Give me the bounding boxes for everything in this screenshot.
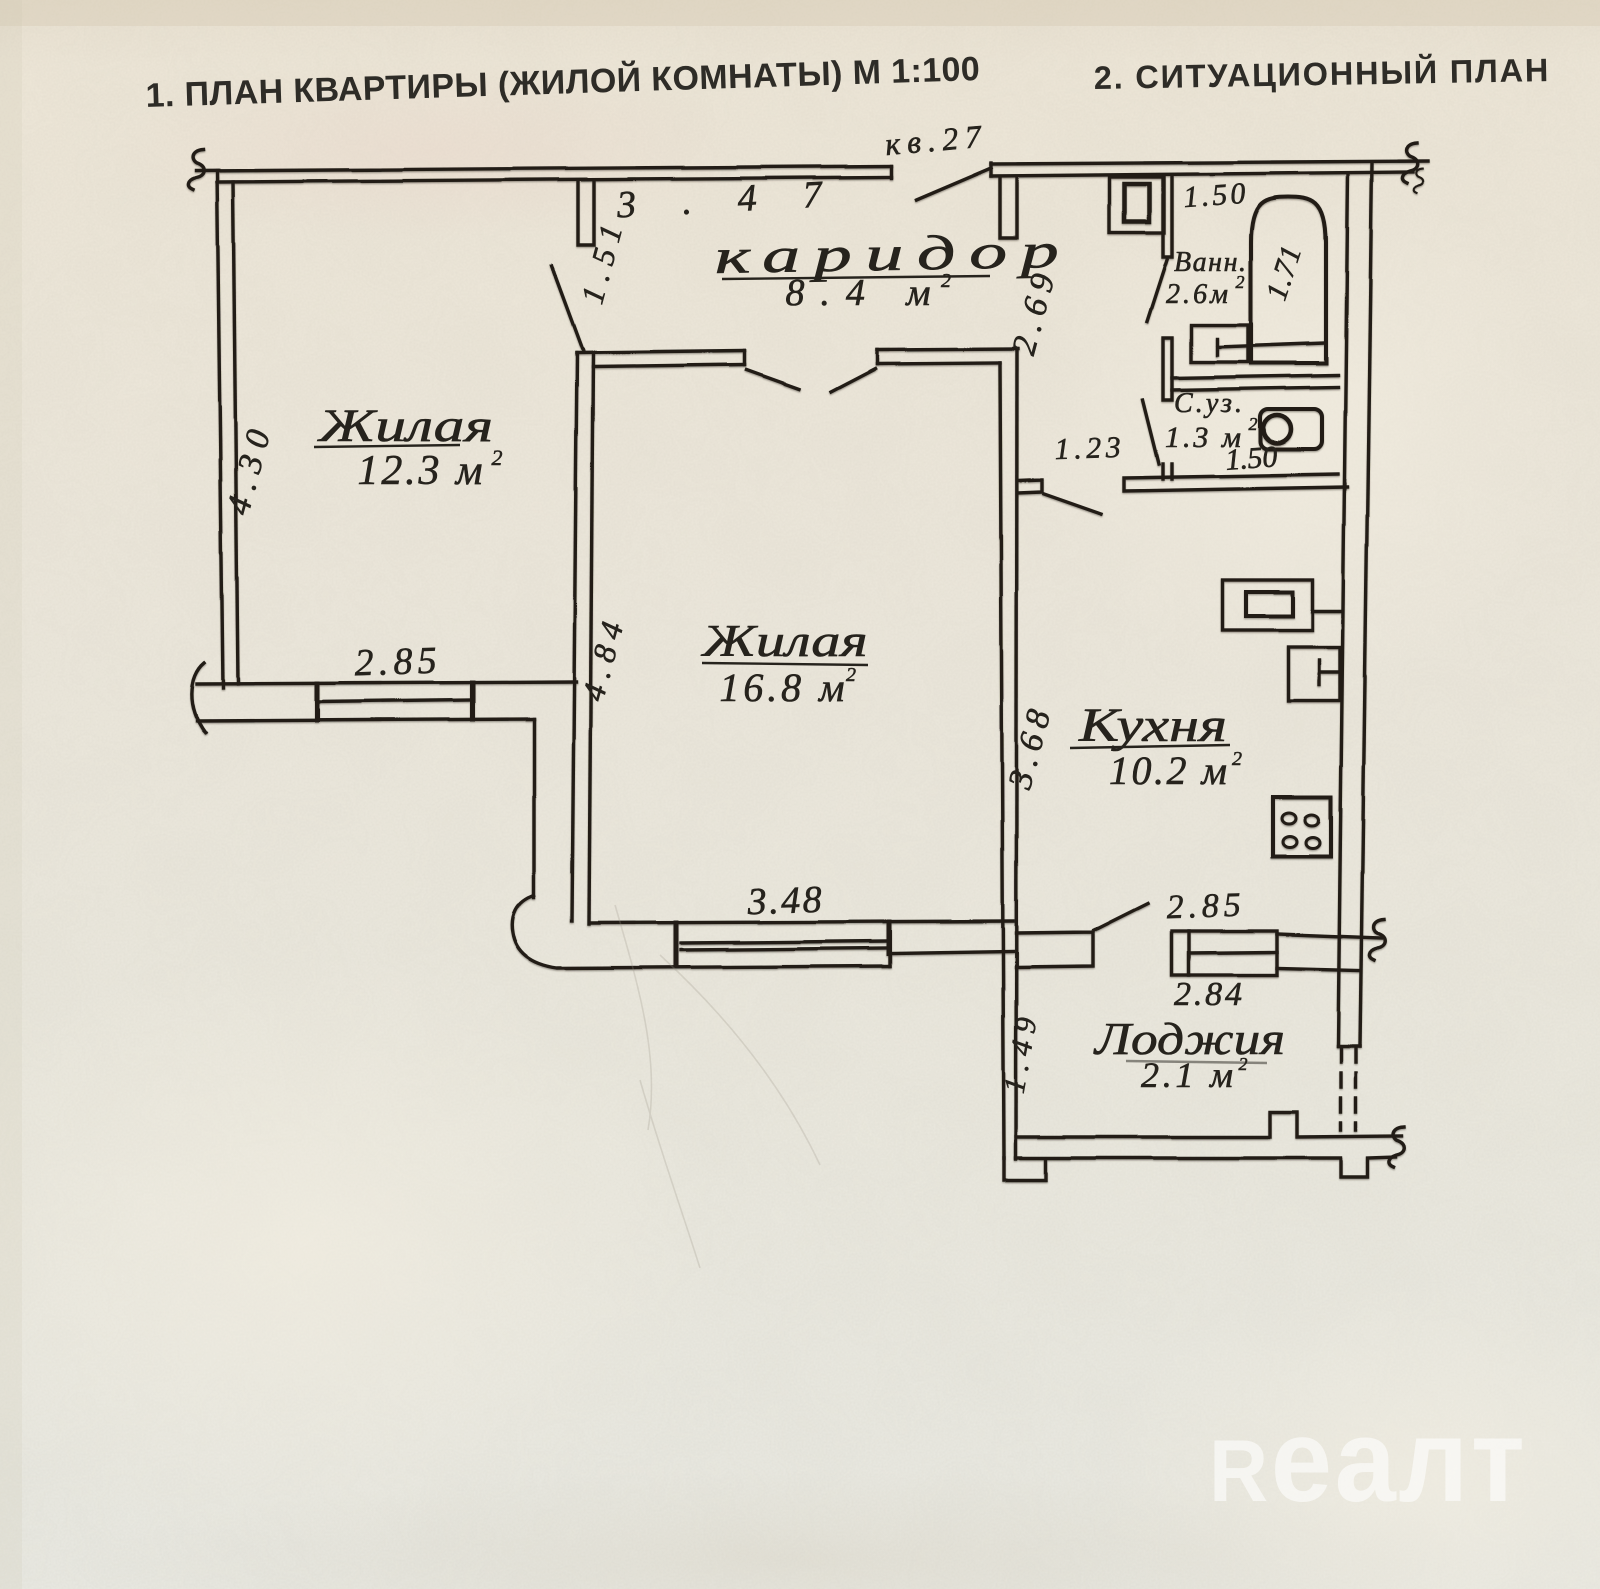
svg-text:Жилая: Жилая [317, 399, 493, 451]
svg-text:16.8 м: 16.8 м [720, 665, 845, 710]
svg-text:10.2 м: 10.2 м [1109, 748, 1227, 793]
svg-text:12.3 м: 12.3 м [358, 448, 483, 494]
svg-text:1.50: 1.50 [1182, 177, 1246, 214]
svg-text:2.6м: 2.6м [1166, 279, 1228, 310]
svg-text:3.48: 3.48 [746, 879, 822, 924]
svg-text:2.84: 2.84 [1174, 976, 1242, 1013]
svg-text:Кухня: Кухня [1078, 698, 1227, 752]
svg-text:2: 2 [1239, 1054, 1248, 1074]
svg-text:2: 2 [1249, 414, 1258, 434]
svg-text:2: 2 [492, 445, 503, 470]
svg-text:2: 2 [1236, 272, 1245, 292]
svg-text:1.23: 1.23 [1054, 431, 1121, 466]
svg-text:Жилая: Жилая [700, 616, 867, 667]
svg-text:С.уз.: С.уз. [1174, 388, 1242, 419]
svg-text:1.50: 1.50 [1224, 440, 1278, 477]
svg-text:2: 2 [846, 664, 856, 686]
svg-text:2: 2 [1232, 748, 1242, 770]
svg-text:2.85: 2.85 [1166, 887, 1241, 927]
svg-text:2.85: 2.85 [354, 640, 437, 685]
svg-text:2: 2 [941, 270, 951, 292]
